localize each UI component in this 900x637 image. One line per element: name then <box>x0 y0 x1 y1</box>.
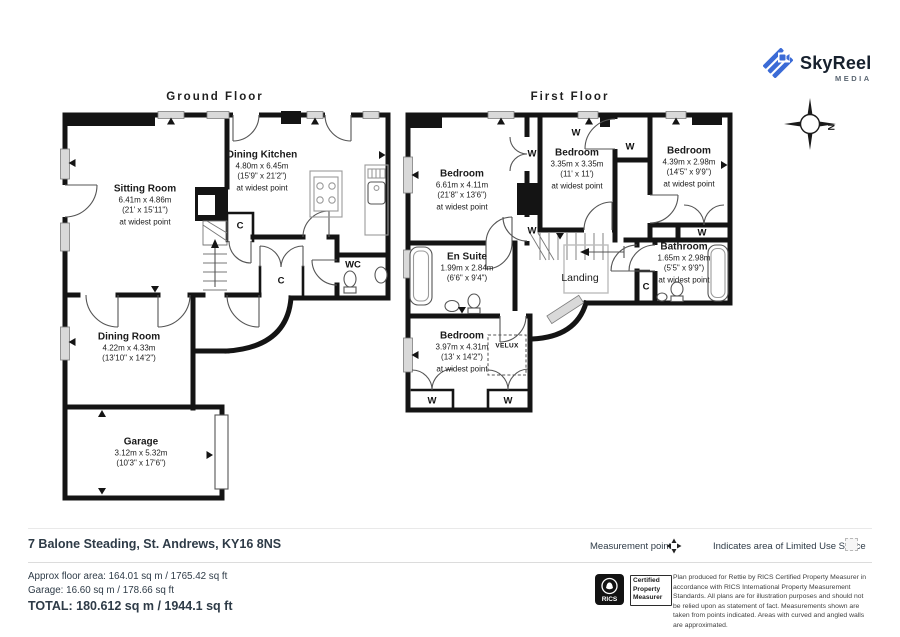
ff-bathroom-fixtures <box>657 245 728 302</box>
first-floor-title: First Floor <box>480 91 660 103</box>
marker-wardrobe-b1-top: W <box>528 149 537 160</box>
measurement-point-icon <box>666 538 682 554</box>
ff-ensuite-fixtures <box>410 247 480 314</box>
marker-wardrobe-bathroom: W <box>698 228 707 239</box>
first-floor-plan: Bedroom 6.61m x 4.11m (21'8" x 13'6") at… <box>400 105 735 420</box>
ground-floor-plan: Sitting Room 6.41m x 4.86m (21' x 15'11"… <box>55 105 400 520</box>
limited-use-label: Indicates area of Limited Use Space <box>713 541 866 552</box>
marker-wardrobe-b4-left: W <box>428 396 437 407</box>
compass-north-label: N <box>826 124 836 131</box>
plan-disclaimer: Plan produced for Rettie by RICS Certifi… <box>673 573 869 630</box>
ff-doors <box>412 119 724 390</box>
approx-floor-area: Approx floor area: 164.01 sq m / 1765.42… <box>28 571 232 582</box>
first-floor-drawing <box>400 105 735 420</box>
property-address: 7 Balone Steading, St. Andrews, KY16 8NS <box>28 537 281 551</box>
divider-bottom <box>28 562 872 563</box>
gf-wc-fixtures <box>344 267 387 293</box>
brand-tagline: MEDIA <box>835 74 872 83</box>
marker-cupboard-landing: C <box>643 282 650 293</box>
total-area: TOTAL: 180.612 sq m / 1944.1 sq ft <box>28 599 232 613</box>
rics-logo: RICS <box>595 574 624 605</box>
area-summary: Approx floor area: 164.01 sq m / 1765.42… <box>28 571 232 613</box>
brand-logo: SkyReel MEDIA <box>763 48 893 84</box>
measurement-point-label: Measurement point <box>590 541 671 552</box>
ff-stairs-icon <box>530 233 624 293</box>
floorplan-page: SkyReel MEDIA N Ground Floor First Floor <box>0 0 900 637</box>
ground-floor-title: Ground Floor <box>125 91 305 103</box>
marker-cupboard-stairs: C <box>237 221 244 232</box>
limited-use-icon <box>845 538 858 551</box>
certified-property-measurer-label: Certified Property Measurer <box>630 575 672 606</box>
compass-icon: N <box>782 96 838 152</box>
marker-wardrobe-b1-bottom: W <box>528 226 537 237</box>
gf-stairs-icon <box>203 221 227 290</box>
rics-org-label: RICS <box>602 596 618 603</box>
marker-wardrobe-b3: W <box>626 142 635 153</box>
ground-floor-drawing <box>55 105 400 520</box>
ff-walls <box>408 113 730 410</box>
marker-velux: VELUX <box>495 343 518 350</box>
divider-top <box>28 528 872 529</box>
marker-cupboard-hall: C <box>278 276 285 287</box>
room-label-wc: WC <box>345 260 361 271</box>
gf-kitchen-fixtures <box>310 165 388 235</box>
marker-wardrobe-b2: W <box>572 128 581 139</box>
marker-wardrobe-b4-right: W <box>504 396 513 407</box>
skyreel-icon <box>763 48 793 78</box>
garage-area: Garage: 16.60 sq m / 178.66 sq ft <box>28 585 232 596</box>
